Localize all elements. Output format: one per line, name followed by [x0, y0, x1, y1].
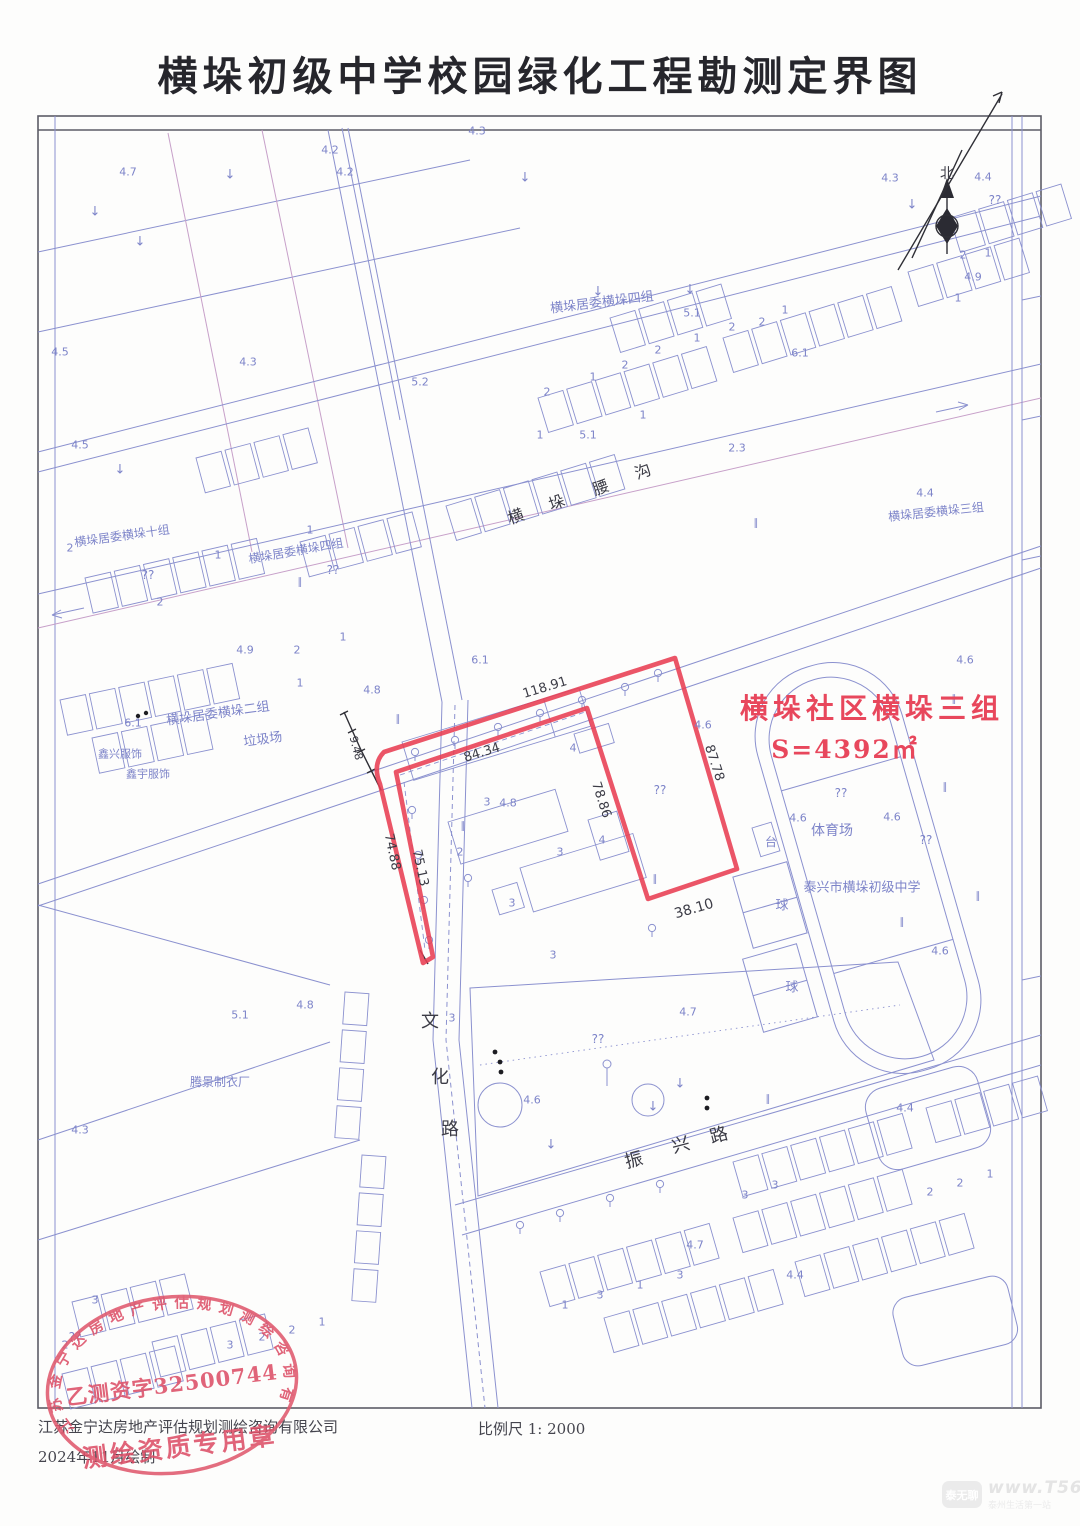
map-label: 5.2: [411, 377, 429, 388]
map-label: 3: [227, 1340, 234, 1351]
map-label: 体育场: [811, 824, 853, 838]
map-label: ??: [654, 784, 667, 796]
map-label: 4.5: [71, 440, 89, 451]
map-label: 4.6: [789, 813, 807, 824]
map-label: ??: [920, 834, 933, 846]
map-label: 4.4: [916, 488, 934, 499]
map-label: 2: [67, 543, 74, 554]
map-label: ∥: [900, 918, 905, 928]
map-label: 4.7: [686, 1240, 704, 1251]
map-label: 1: [590, 372, 597, 383]
map-label: 4.3: [881, 173, 899, 184]
map-label: 泰兴市横垛初级中学: [803, 882, 920, 895]
map-label: 5.1: [579, 430, 597, 441]
playground: [470, 962, 934, 1196]
map-label: 3: [92, 1295, 99, 1306]
map-label: ??: [835, 787, 848, 799]
map-label: 3: [597, 1290, 604, 1301]
map-label: 2: [622, 360, 629, 371]
map-label: 2: [960, 250, 967, 261]
map-label: ??: [69, 1331, 82, 1343]
map-label: 2: [289, 1325, 296, 1336]
map-label: 1: [307, 525, 314, 536]
housing-rows: [60, 184, 1071, 1409]
map-label: 4.3: [468, 126, 486, 137]
watermark-site: www.T56.net: [988, 1478, 1080, 1498]
map-label: 4.3: [71, 1125, 89, 1136]
map-label: 4.6: [883, 812, 901, 823]
map-label: 4.8: [499, 798, 517, 809]
map-label: 鑫宇服饰: [126, 769, 170, 780]
map-label: 3: [742, 1190, 749, 1201]
map-label: 1: [340, 632, 347, 643]
ponds: [861, 1062, 1021, 1370]
map-label: 4.4: [896, 1103, 914, 1114]
map-label: ∥: [943, 783, 948, 793]
map-label: ↓: [907, 199, 918, 212]
map-label: ∥: [766, 1095, 771, 1105]
map-label: 1: [955, 293, 962, 304]
map-label: 2.3: [728, 443, 746, 454]
map-label: 1: [297, 678, 304, 689]
map-label: 腾景制衣厂: [190, 1076, 250, 1088]
map-label: 1: [319, 1317, 326, 1328]
watermark-tagline: 泰州生活第一站: [988, 1498, 1080, 1511]
map-label: ∥: [653, 875, 658, 885]
map-label: 4: [599, 835, 606, 846]
map-label: 文: [421, 1013, 439, 1031]
map-label: 4.2: [336, 167, 354, 178]
map-label: ↓: [546, 1139, 557, 1152]
map-label: 2: [62, 1340, 69, 1351]
map-label: 鑫兴服饰: [98, 749, 142, 760]
map-label: 2: [655, 345, 662, 356]
map-date: 2024年11月绘制: [38, 1446, 155, 1467]
map-label: 6.1: [471, 655, 489, 666]
map-label: 1: [640, 410, 647, 421]
map-label: 4.8: [363, 685, 381, 696]
map-label: 2: [294, 645, 301, 656]
map-label: 1: [987, 1169, 994, 1180]
map-label: 4.2: [321, 145, 339, 156]
map-label: 1: [637, 1280, 644, 1291]
map-label: 3: [772, 1180, 779, 1191]
map-label: 1: [562, 1300, 569, 1311]
road-zhenxing: [455, 1035, 1041, 1235]
map-label: 1: [985, 248, 992, 259]
map-label: ↓: [685, 284, 696, 297]
map-label: 1: [537, 430, 544, 441]
map-label: 6.1: [124, 718, 142, 729]
map-label: 3: [557, 847, 564, 858]
map-label: ↓: [135, 236, 146, 249]
map-label: 2: [259, 1332, 266, 1343]
survey-map-page: 横垛初级中学校园绿化工程勘测定界图: [0, 0, 1080, 1526]
map-label: ??: [142, 569, 155, 581]
map-label: 球: [775, 900, 788, 913]
map-label: 4.4: [786, 1270, 804, 1281]
map-label: 3: [550, 950, 557, 961]
map-label: 4.8: [296, 1000, 314, 1011]
watermark-logo: 泰无聊: [942, 1481, 982, 1508]
map-label: 4.9: [964, 272, 982, 283]
map-label: 2: [957, 1178, 964, 1189]
map-label: 4.9: [236, 645, 254, 656]
map-label: 5.1: [683, 308, 701, 319]
map-label: 4.3: [239, 357, 257, 368]
map-label: ↓: [115, 464, 126, 477]
map-label: 2: [457, 847, 464, 858]
map-label: ??: [592, 1033, 605, 1045]
map-label: 北: [940, 167, 954, 181]
map-label: 5.1: [231, 1010, 249, 1021]
map-label: 4.7: [679, 1007, 697, 1018]
map-label: 1: [782, 305, 789, 316]
map-label: 4.6: [931, 946, 949, 957]
map-label: 2: [544, 387, 551, 398]
map-label: 2: [157, 597, 164, 608]
map-label: 4.7: [119, 167, 137, 178]
map-label: ??: [989, 194, 1002, 206]
map-label: ↓: [90, 206, 101, 219]
map-label: ∥: [461, 822, 466, 832]
map-label: ↓: [225, 169, 236, 182]
map-label: ∥: [298, 578, 303, 588]
map-label: 3: [677, 1270, 684, 1281]
map-label: 2: [927, 1187, 934, 1198]
map-label: ↓: [648, 1101, 659, 1114]
plot-name-label: 横垛社区横垛三组: [740, 687, 1004, 727]
company-name: 江苏金宁达房地产评估规划测绘咨询有限公司: [38, 1416, 338, 1437]
right-road: [1012, 116, 1041, 1408]
map-label: 4.5: [51, 347, 69, 358]
map-label: 4.4: [974, 172, 992, 183]
map-label: 4.6: [523, 1095, 541, 1106]
map-label: 3: [509, 898, 516, 909]
map-label: 球: [785, 982, 798, 995]
map-label: 6.1: [791, 348, 809, 359]
map-label: 化: [431, 1069, 449, 1087]
map-label: ↓: [593, 286, 604, 299]
map-label: 路: [441, 1121, 459, 1139]
map-label: 4.6: [694, 720, 712, 731]
map-label: 台: [765, 836, 777, 848]
map-label: 1: [215, 550, 222, 561]
map-label: 2: [759, 317, 766, 328]
map-label: 4.6: [956, 655, 974, 666]
map-label: ↓: [520, 172, 531, 185]
map-label: 1: [694, 333, 701, 344]
map-label: ∥: [754, 519, 759, 529]
map-label: ∥: [976, 892, 981, 902]
flag-pole-icon: [603, 1060, 611, 1086]
map-label: ↓: [675, 1078, 686, 1091]
map-label: 3: [449, 1013, 456, 1024]
map-label: 4: [570, 743, 577, 754]
site-watermark: 泰无聊 www.T56.net 泰州生活第一站: [942, 1478, 1080, 1511]
map-scale: 比例尺 1: 2000: [478, 1418, 585, 1439]
map-label: ∥: [396, 715, 401, 725]
map-label: ??: [327, 564, 340, 576]
map-label: 3: [484, 797, 491, 808]
map-label: 2: [729, 322, 736, 333]
plot-area-label: S=4392㎡: [771, 730, 919, 766]
